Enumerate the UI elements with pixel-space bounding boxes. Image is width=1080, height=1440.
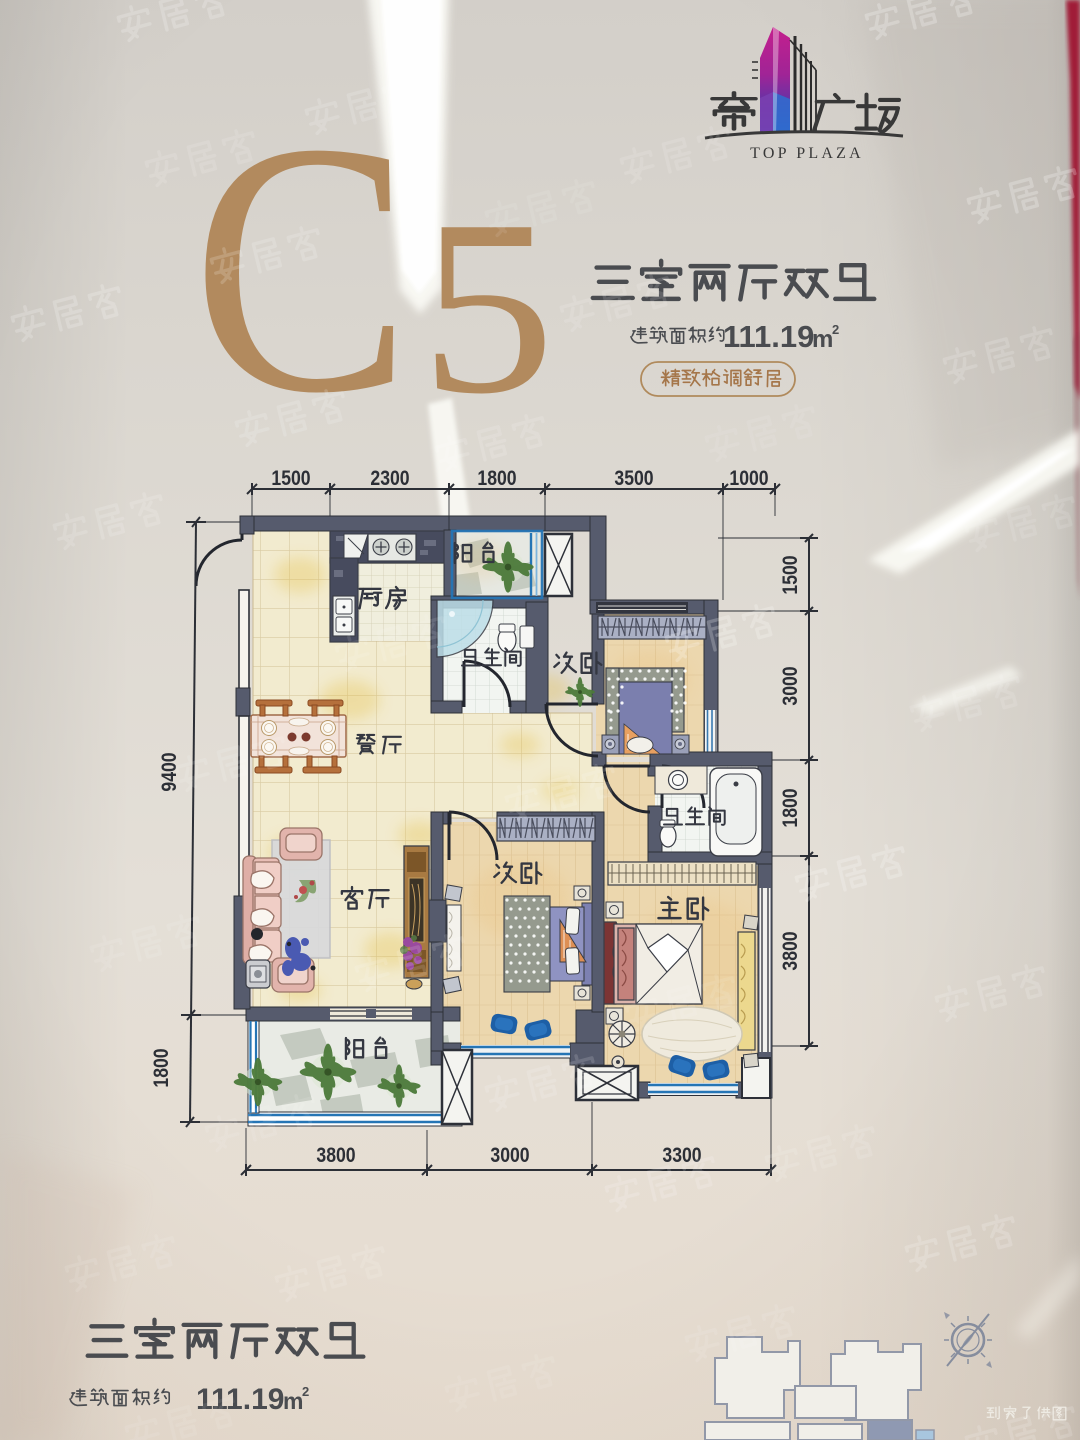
svg-text:111.19: 111.19 [196,1383,284,1416]
svg-text:2300: 2300 [370,466,409,490]
svg-text:2: 2 [832,322,839,337]
svg-text:m: m [812,326,833,353]
svg-text:TOP PLAZA: TOP PLAZA [750,145,864,162]
svg-text:C: C [192,68,411,467]
svg-text:1800: 1800 [149,1048,173,1087]
svg-text:1500: 1500 [778,555,802,594]
svg-text:1800: 1800 [477,466,516,490]
svg-text:1500: 1500 [271,466,310,490]
svg-text:1000: 1000 [729,466,768,490]
svg-text:3000: 3000 [778,666,802,705]
svg-text:m: m [283,1388,303,1414]
svg-text:3000: 3000 [490,1143,529,1167]
svg-text:3800: 3800 [778,931,802,970]
svg-text:3800: 3800 [316,1143,355,1167]
svg-text:111.19: 111.19 [723,319,814,354]
svg-text:2: 2 [302,1384,309,1399]
svg-text:3500: 3500 [614,466,653,490]
svg-text:1800: 1800 [778,788,802,827]
